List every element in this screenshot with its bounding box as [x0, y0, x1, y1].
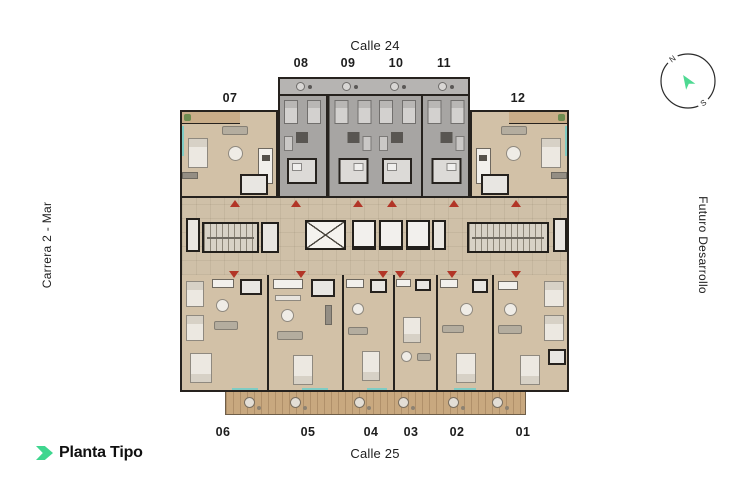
bottom-unit-row: [180, 275, 569, 392]
balcony-chair: [411, 406, 415, 410]
stair-rail: [472, 237, 544, 239]
elevator-car: [406, 220, 430, 250]
unit-11: [423, 96, 469, 196]
bed: [520, 355, 540, 385]
entrance-marker: [447, 271, 457, 278]
entrance-marker: [229, 271, 239, 278]
bathroom: [240, 174, 268, 195]
wardrobe: [284, 136, 293, 151]
balcony-chair: [308, 85, 312, 89]
bed: [427, 100, 441, 124]
balcony-table: [244, 397, 255, 408]
unit-label-11: 11: [437, 56, 451, 70]
logo: Planta Tipo: [36, 444, 143, 462]
bathroom: [431, 158, 461, 184]
bed: [379, 100, 393, 124]
balcony-chair: [402, 85, 406, 89]
stove: [479, 155, 487, 161]
balcony-chair: [461, 406, 465, 410]
balcony-strip-top: [280, 79, 468, 96]
window: [565, 126, 567, 156]
balcony-chair: [303, 406, 307, 410]
floor-plan: [180, 77, 569, 415]
sofa: [501, 126, 527, 135]
unit-03: [393, 275, 436, 392]
kitchen-counter: [273, 279, 303, 289]
balcony-chair: [367, 406, 371, 410]
entrance-marker: [378, 271, 388, 278]
entrance-marker: [511, 200, 521, 207]
dining-table: [401, 351, 412, 362]
service-shaft: [432, 220, 446, 250]
street-label-bottom: Calle 25: [350, 446, 399, 461]
unit-label-03: 03: [404, 425, 419, 439]
bed: [188, 138, 208, 168]
bed: [541, 138, 561, 168]
bathroom: [240, 279, 262, 295]
unit-10: [375, 96, 423, 196]
side-label-right: Futuro Desarrollo: [696, 196, 710, 294]
kitchen-counter: [440, 132, 452, 143]
elevator-car: [352, 220, 376, 250]
bathroom: [481, 174, 509, 195]
bed: [334, 100, 348, 124]
unit-04: [342, 275, 393, 392]
bath-fixture: [387, 163, 397, 171]
side-label-left: Carrera 2 - Mar: [40, 202, 54, 289]
terrace: [509, 112, 567, 124]
bed: [403, 317, 421, 343]
wardrobe: [455, 136, 464, 151]
wardrobe: [551, 172, 567, 179]
sofa: [417, 353, 431, 361]
wardrobe: [182, 172, 198, 179]
unit-07: [180, 110, 278, 198]
plant: [558, 114, 565, 121]
stairwell-right: [467, 222, 549, 253]
bathroom: [311, 279, 335, 297]
window: [454, 388, 476, 390]
kitchen-counter: [212, 279, 234, 288]
elevator-car: [379, 220, 403, 250]
entrance-marker: [230, 200, 240, 207]
unit-09: [328, 96, 376, 196]
plant: [184, 114, 191, 121]
entrance-marker: [387, 200, 397, 207]
window: [182, 126, 184, 156]
entrance-marker: [511, 271, 521, 278]
kitchen-counter: [347, 132, 359, 143]
bathroom: [338, 158, 368, 184]
window: [367, 388, 387, 390]
unit-08: [280, 96, 328, 196]
balcony-strip-bottom: [225, 392, 526, 415]
unit-01: [492, 275, 571, 392]
balcony-table: [342, 82, 351, 91]
balcony-table: [290, 397, 301, 408]
service-shaft: [261, 222, 279, 253]
bathroom: [370, 279, 387, 293]
terrace: [182, 112, 240, 124]
stairwell-left: [202, 222, 259, 253]
wardrobe: [379, 136, 388, 151]
logo-chevron-icon: [36, 446, 53, 460]
bed: [186, 281, 204, 307]
kitchen-counter: [498, 281, 518, 290]
dining-table: [506, 146, 521, 161]
unit-label-01: 01: [516, 425, 531, 439]
unit-label-09: 09: [341, 56, 356, 70]
sofa: [348, 327, 368, 335]
street-label-top: Calle 24: [350, 38, 399, 53]
window: [232, 388, 258, 390]
balcony-table: [354, 397, 365, 408]
bed: [307, 100, 321, 124]
dining-table: [352, 303, 364, 315]
balcony-chair: [505, 406, 509, 410]
gray-unit-block: [278, 77, 470, 198]
dining-table: [460, 303, 473, 316]
stair-rail: [207, 237, 254, 239]
bathroom: [472, 279, 488, 293]
entrance-marker: [291, 200, 301, 207]
entrance-marker: [449, 200, 459, 207]
bed: [284, 100, 298, 124]
dining-table: [281, 309, 294, 322]
compass: N S: [652, 45, 724, 117]
bathroom: [415, 279, 431, 291]
wardrobe: [362, 136, 371, 151]
bed: [293, 355, 313, 385]
window: [302, 388, 328, 390]
kitchen-island: [275, 295, 301, 301]
north-needle-icon: [678, 72, 695, 90]
balcony-chair: [354, 85, 358, 89]
sofa: [277, 331, 303, 340]
balcony-table: [448, 397, 459, 408]
unit-06: [182, 275, 267, 392]
unit-label-05: 05: [301, 425, 316, 439]
bath-fixture: [292, 163, 302, 171]
sofa: [214, 321, 238, 330]
unit-label-04: 04: [364, 425, 379, 439]
bathroom: [287, 158, 317, 184]
balcony-chair: [257, 406, 261, 410]
unit-07-interior: [182, 112, 276, 196]
bed: [402, 100, 416, 124]
entrance-marker: [353, 200, 363, 207]
bath-fixture: [353, 163, 363, 171]
unit-12-interior: [472, 112, 567, 196]
dining-table: [228, 146, 243, 161]
sofa: [442, 325, 464, 333]
service-shaft: [553, 218, 567, 252]
bed: [544, 281, 564, 307]
service-shaft: [186, 218, 200, 252]
wardrobe: [325, 305, 332, 325]
balcony-table: [296, 82, 305, 91]
unit-02: [436, 275, 492, 392]
kitchen-counter: [396, 279, 411, 287]
bed: [357, 100, 371, 124]
elevator-shaft-x: [305, 220, 346, 250]
floorplan-page: { "streets": { "top": "Calle 24", "botto…: [0, 0, 749, 500]
gray-units-row: [280, 96, 468, 196]
dining-table: [216, 299, 229, 312]
unit-label-06: 06: [216, 425, 231, 439]
balcony-table: [492, 397, 503, 408]
bath-fixture: [446, 163, 456, 171]
bed: [544, 315, 564, 341]
corridor: [180, 198, 569, 275]
bed: [456, 353, 476, 383]
balcony-table: [438, 82, 447, 91]
kitchen-counter: [391, 132, 403, 143]
kitchen-counter: [440, 279, 458, 288]
dining-table: [504, 303, 517, 316]
bathroom: [548, 349, 566, 365]
balcony-table: [390, 82, 399, 91]
bed: [362, 351, 380, 381]
unit-label-08: 08: [294, 56, 309, 70]
bed: [186, 315, 204, 341]
unit-label-02: 02: [450, 425, 465, 439]
bathroom: [382, 158, 412, 184]
logo-text: Planta Tipo: [59, 444, 143, 462]
entrance-marker: [395, 271, 405, 278]
bed: [190, 353, 212, 383]
sofa: [222, 126, 248, 135]
sofa: [498, 325, 522, 334]
unit-12: [470, 110, 569, 198]
balcony-table: [398, 397, 409, 408]
kitchen-counter: [346, 279, 364, 288]
stove: [262, 155, 270, 161]
bed: [450, 100, 464, 124]
kitchen-counter: [296, 132, 308, 143]
balcony-chair: [450, 85, 454, 89]
unit-label-10: 10: [389, 56, 404, 70]
entrance-marker: [296, 271, 306, 278]
elevator-bank: [352, 220, 430, 250]
unit-05: [267, 275, 342, 392]
